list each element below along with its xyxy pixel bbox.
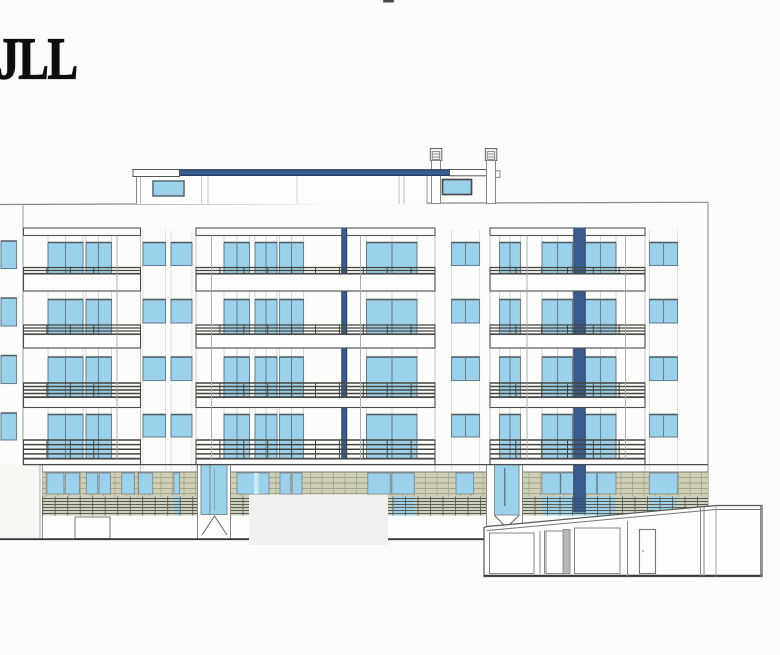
svg-text:JLL: JLL bbox=[0, 27, 77, 92]
